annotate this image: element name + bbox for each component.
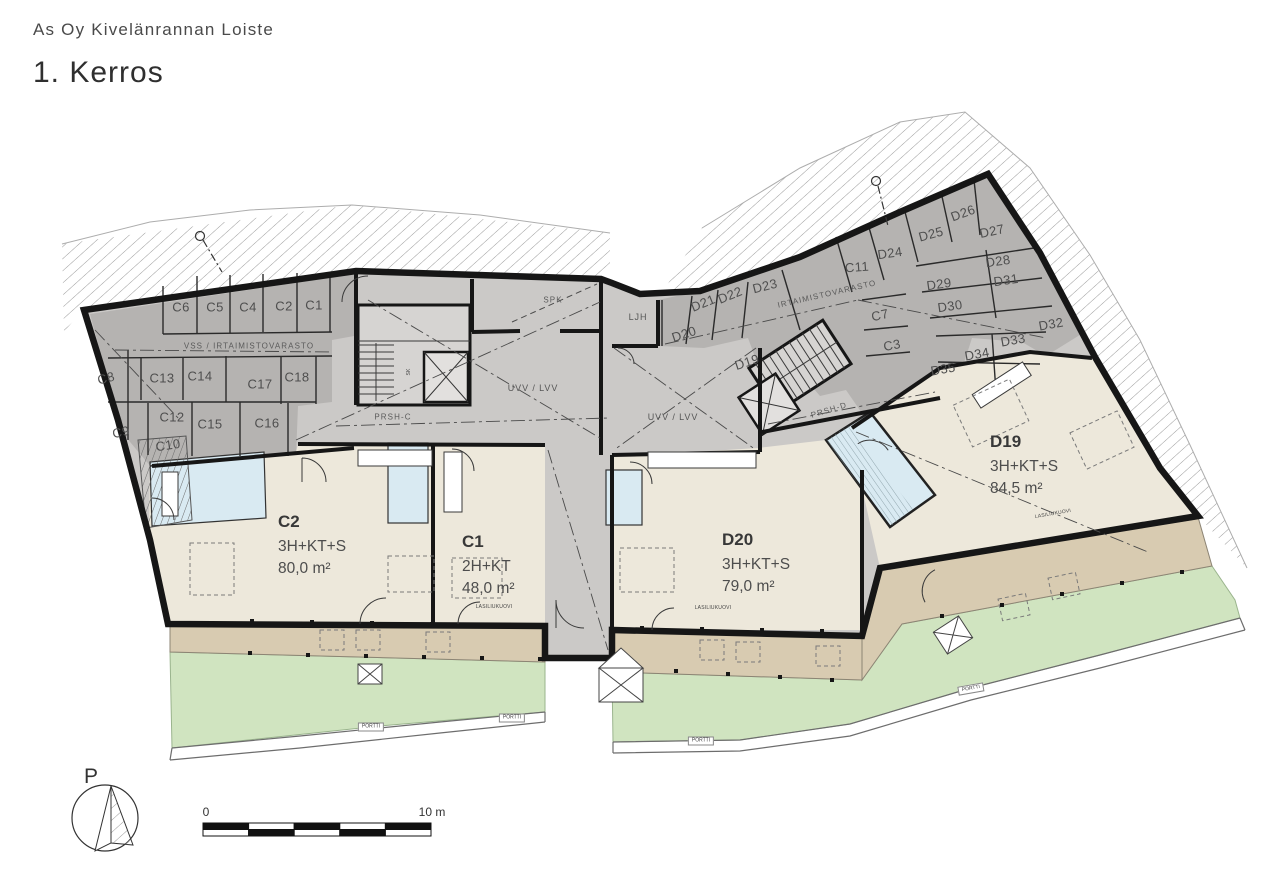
storage-room-label: C18: [284, 370, 309, 385]
storage-room-label: C6: [172, 300, 189, 315]
scale-end-label: 10 m: [419, 805, 446, 819]
storage-room-label: C11: [844, 259, 869, 276]
storage-room-label: C5: [206, 300, 223, 315]
room-label-sk: SK: [406, 368, 412, 375]
apartment-area: 80,0 m²: [278, 558, 346, 580]
storage-room-label: C17: [247, 377, 272, 392]
north-arrow: [72, 785, 138, 851]
storage-room-label: C4: [239, 300, 256, 315]
storage-room-label: C13: [149, 371, 174, 386]
scale-bar: [203, 823, 431, 836]
staircase-c: [358, 305, 470, 405]
drawing-header: As Oy Kivelänrannan Loiste 1. Kerros: [33, 20, 274, 90]
project-title: As Oy Kivelänrannan Loiste: [33, 20, 274, 40]
apartment-id: D19: [990, 432, 1058, 452]
scale-start-label: 0: [203, 805, 210, 819]
apartment-label-c2: C2 3H+KT+S 80,0 m²: [278, 512, 346, 580]
room-label-uvv-left: UVV / LVV: [508, 383, 558, 393]
storage-room-label: C3: [882, 336, 902, 354]
gate-label: PORTTI: [499, 714, 525, 723]
room-label-spk: SPK: [543, 296, 562, 305]
apartment-type: 3H+KT+S: [722, 554, 790, 576]
apartment-area: 48,0 m²: [462, 578, 515, 600]
storage-room-label: C15: [197, 417, 222, 432]
storage-room-label: C16: [254, 416, 279, 431]
gate-label: PORTTI: [688, 737, 714, 746]
apartment-type: 3H+KT+S: [990, 456, 1058, 478]
apartment-type: 2H+KT: [462, 556, 515, 578]
floor-title: 1. Kerros: [33, 56, 274, 90]
room-label-uvv-right: UVV / LVV: [648, 412, 698, 422]
sliding-door-annotation: LASILIUKUOVI: [695, 605, 732, 611]
storage-corridor-label-c: VSS / IRTAIMISTOVARASTO: [184, 342, 314, 351]
apartment-label-c1: C1 2H+KT 48,0 m²: [462, 532, 515, 600]
apartment-area: 79,0 m²: [722, 576, 790, 598]
floor-plan-drawing: [0, 0, 1261, 888]
apartment-label-d20: D20 3H+KT+S 79,0 m²: [722, 530, 790, 598]
room-label-ljh: LJH: [629, 312, 648, 322]
apartment-label-d19: D19 3H+KT+S 84,5 m²: [990, 432, 1058, 500]
apartment-id: C2: [278, 512, 346, 532]
floor-plan-page: As Oy Kivelänrannan Loiste 1. Kerros C6 …: [0, 0, 1261, 888]
storage-room-label: C14: [187, 369, 212, 384]
apartment-id: C1: [462, 532, 515, 552]
storage-room-label: C12: [159, 410, 184, 425]
north-label: P: [84, 765, 98, 789]
apartment-type: 3H+KT+S: [278, 536, 346, 558]
sliding-door-annotation: LASILIUKUOVI: [476, 604, 513, 610]
storage-room-label: C1: [305, 298, 322, 313]
room-label-prsh-c: PRSH-C: [374, 413, 411, 422]
apartment-area: 84,5 m²: [990, 478, 1058, 500]
storage-room-label: C2: [275, 299, 292, 314]
gate-label: PORTTI: [358, 723, 384, 732]
apartment-id: D20: [722, 530, 790, 550]
